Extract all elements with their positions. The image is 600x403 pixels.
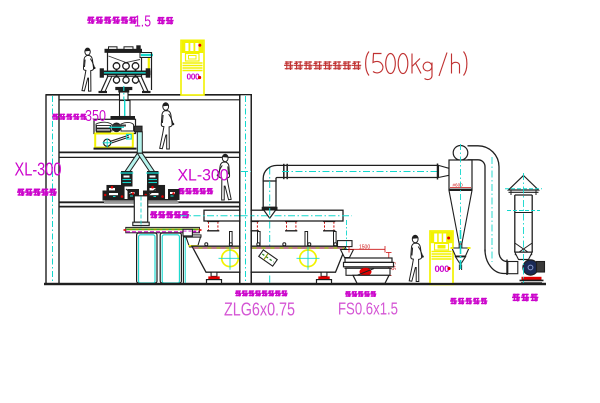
svg-text:XL-300: XL-300 — [178, 166, 229, 185]
svg-text:#600: #600 — [453, 183, 464, 188]
svg-text:FS0.6x1.5: FS0.6x1.5 — [338, 299, 398, 319]
svg-text:XL-300: XL-300 — [15, 160, 62, 180]
svg-text:1500: 1500 — [359, 244, 370, 250]
svg-text:1.5: 1.5 — [134, 14, 151, 31]
svg-text:000: 000 — [187, 72, 200, 82]
svg-text:350: 350 — [85, 108, 106, 125]
svg-text:000: 000 — [435, 264, 450, 275]
svg-text:ZLG6x0.75: ZLG6x0.75 — [224, 299, 295, 320]
